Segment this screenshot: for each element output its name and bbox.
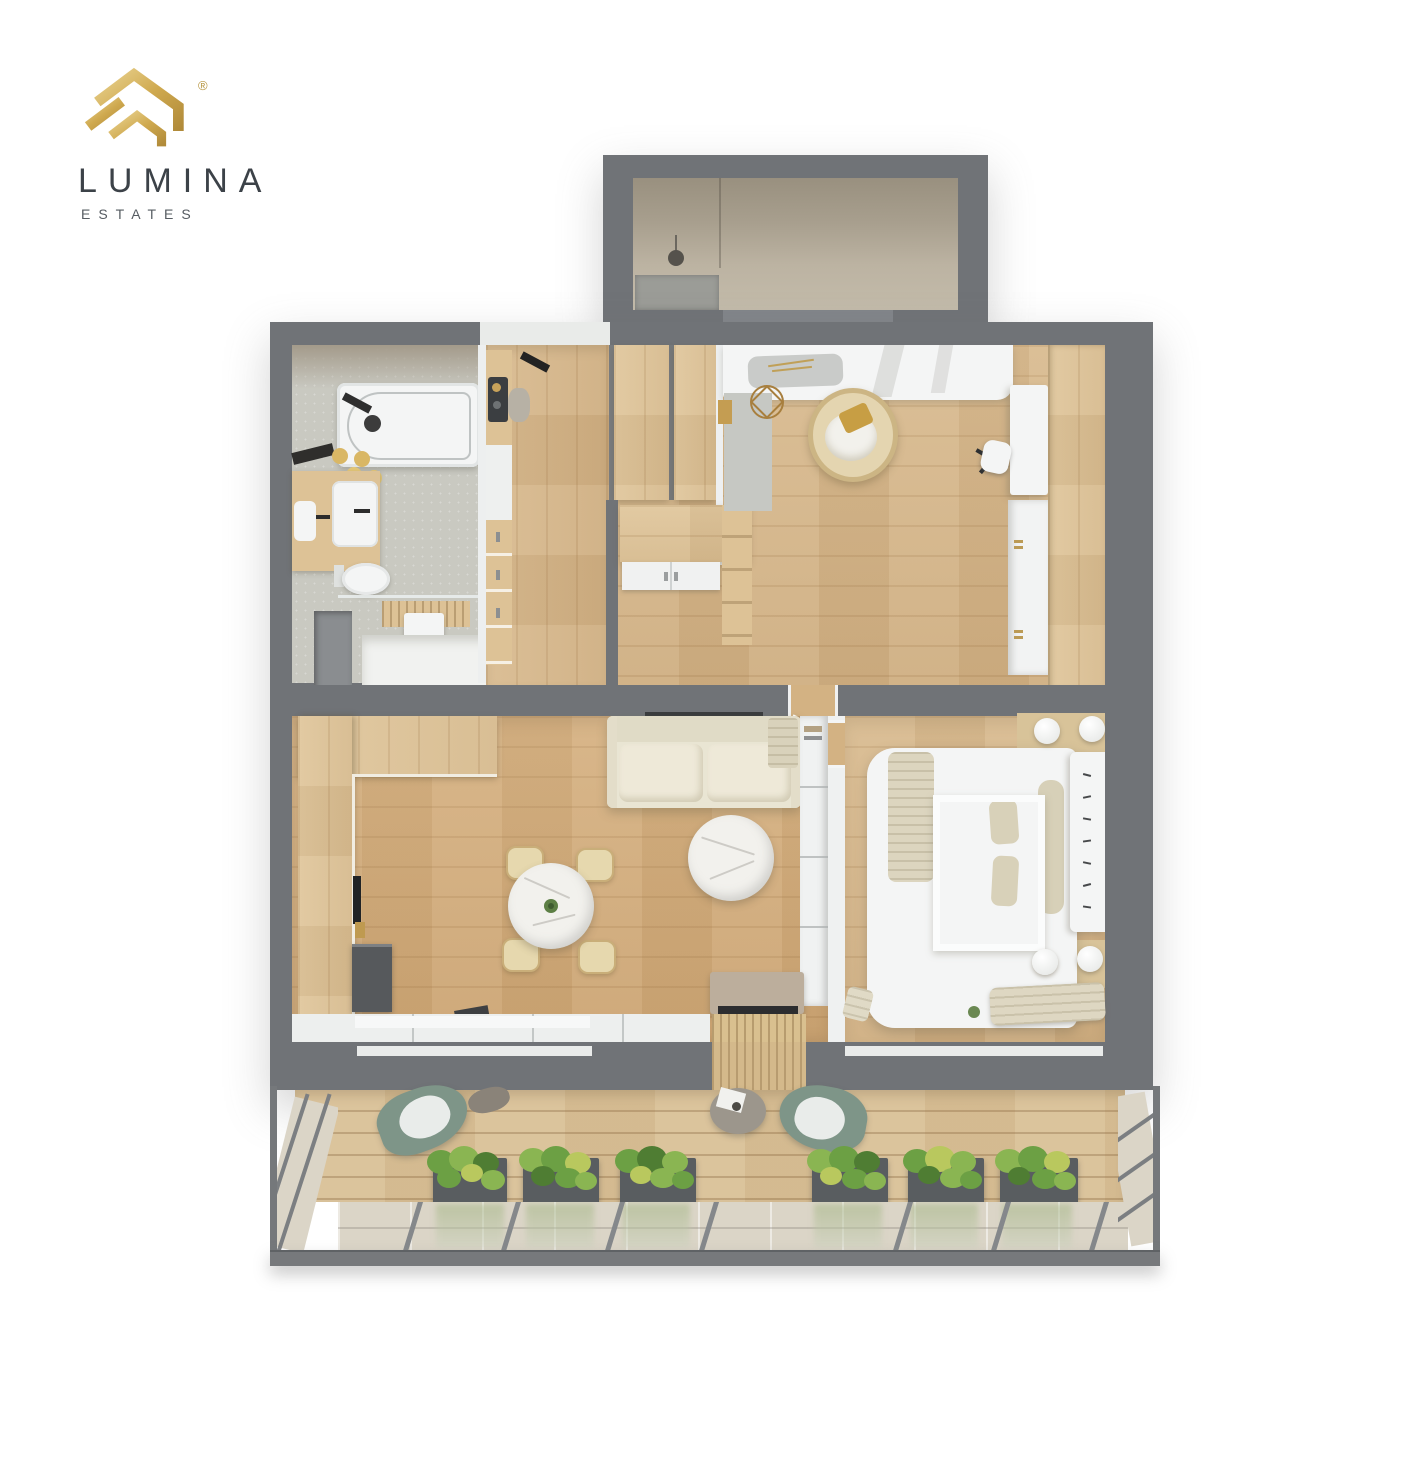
media-cabinet xyxy=(352,944,392,1012)
brand-subtitle: ESTATES xyxy=(81,206,199,222)
kitchen xyxy=(486,345,610,685)
cooktop xyxy=(488,377,508,422)
wardrobe-white xyxy=(1008,500,1048,675)
vestibule-floor xyxy=(633,178,958,310)
sink-right xyxy=(332,481,378,547)
bed-pillows-gray xyxy=(747,353,843,388)
sofa-seat xyxy=(619,744,703,802)
balcony-door-threshold xyxy=(712,1042,806,1090)
rug-accessory xyxy=(718,400,732,424)
bedside-lamp xyxy=(1034,718,1060,744)
wardrobe-inner-edge xyxy=(352,774,497,777)
bathroom-partition-wall xyxy=(478,345,486,683)
kitchen-drawers xyxy=(486,520,512,665)
bedroom-plant xyxy=(968,1006,980,1018)
bedside-lamp xyxy=(1079,716,1105,742)
geometric-decor xyxy=(750,385,784,419)
hall-closet-b xyxy=(674,345,716,500)
vanity-light xyxy=(354,451,370,467)
pendant-light xyxy=(668,250,684,266)
window-frame-left xyxy=(357,1046,592,1056)
window-band xyxy=(292,1014,710,1042)
entry-doormat xyxy=(635,275,719,310)
balcony-threshold-mat xyxy=(712,1014,806,1042)
headboard xyxy=(1070,752,1105,932)
living-shelf-cabinet xyxy=(800,716,828,1006)
lumina-estates-logo: ® LUMINA ESTATES xyxy=(78,46,378,236)
duvet-fold xyxy=(872,345,905,397)
plant-reflection xyxy=(436,1204,504,1248)
duvet-fold xyxy=(931,345,953,393)
dining-chair xyxy=(578,940,616,974)
glass-railing xyxy=(338,1202,1128,1254)
bedside-lamp xyxy=(1032,949,1058,975)
vestibule-wall-seam xyxy=(719,178,721,268)
hall-closet-a xyxy=(614,345,669,500)
living-wardrobe-left xyxy=(298,716,352,1026)
entry-threshold xyxy=(723,310,893,322)
living-door-opening xyxy=(788,685,838,716)
canopy-frame xyxy=(933,795,1045,951)
plant-reflection xyxy=(910,1204,978,1248)
wall-tv xyxy=(353,876,361,924)
registered-mark: ® xyxy=(198,78,208,93)
sink-left xyxy=(294,501,316,541)
window-frame-right xyxy=(845,1046,1103,1056)
brand-name: LUMINA xyxy=(78,162,272,201)
faucet xyxy=(316,515,330,519)
hall-cabinet-doors xyxy=(622,562,720,590)
floor-plan-image: ® LUMINA ESTATES xyxy=(0,0,1422,1464)
bedside-lamp xyxy=(1077,946,1103,972)
desk xyxy=(1010,385,1048,495)
plant-reflection xyxy=(814,1204,882,1248)
kitchen-counter-white xyxy=(486,445,512,520)
gold-vase xyxy=(355,922,365,938)
toilet xyxy=(342,563,390,595)
dining-table xyxy=(508,863,594,949)
bed-blanket xyxy=(888,752,934,882)
apartment-block xyxy=(270,322,1153,1090)
shower-glass xyxy=(338,595,498,598)
hall-shelf-column xyxy=(722,505,752,645)
kitchen-mat xyxy=(508,388,530,422)
bedroom-door-opening xyxy=(828,720,845,768)
plant-reflection xyxy=(622,1204,690,1248)
railing-front-bar xyxy=(270,1250,1160,1266)
wardrobe-wood-band xyxy=(1048,345,1105,690)
plant-reflection xyxy=(526,1204,594,1248)
mirror-shelf xyxy=(291,443,335,465)
bathroom xyxy=(292,345,480,683)
house-roof-icon xyxy=(82,50,186,154)
sofa-arm xyxy=(607,716,617,808)
railing-right-corner xyxy=(1118,1086,1160,1256)
railing-left-corner xyxy=(270,1086,338,1256)
office-chair xyxy=(970,437,1014,481)
kitchen-top-wall xyxy=(480,322,610,345)
shower-head xyxy=(364,415,381,432)
vestibule-block xyxy=(603,155,988,322)
range-hood xyxy=(520,351,550,372)
faucet xyxy=(354,509,370,513)
sofa xyxy=(607,716,801,808)
plant-reflection xyxy=(1002,1204,1072,1248)
coffee-table xyxy=(688,815,774,901)
foot-blanket xyxy=(989,982,1106,1026)
table-paper xyxy=(716,1087,746,1113)
vanity-light xyxy=(332,448,348,464)
hall-wall-lower xyxy=(606,500,618,685)
balcony-side-table xyxy=(710,1088,766,1134)
hanging-chair xyxy=(808,388,898,482)
balcony xyxy=(270,1086,1160,1268)
sofa-throw xyxy=(768,718,798,768)
